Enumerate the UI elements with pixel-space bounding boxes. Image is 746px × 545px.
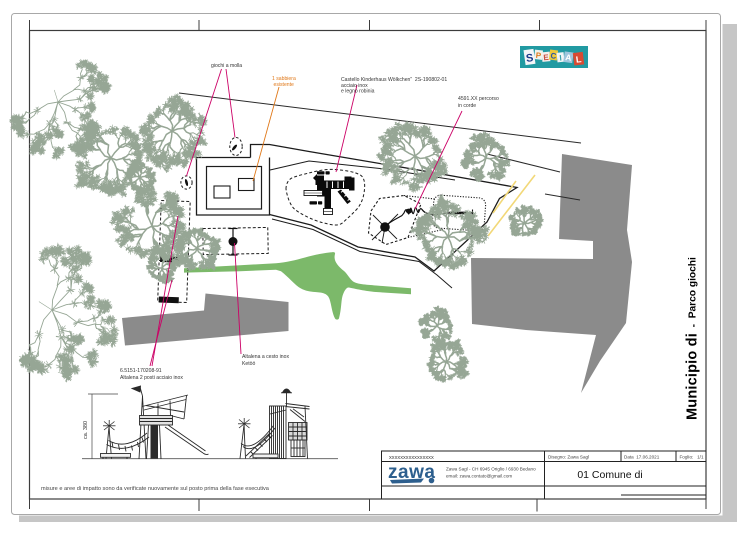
svg-text:giochi a molla: giochi a molla <box>211 63 242 69</box>
svg-text:ca. 380: ca. 380 <box>83 421 89 439</box>
svg-text:Zawa Sagl - CH 6945 Origlio /: Zawa Sagl - CH 6945 Origlio / 6930 Bedan… <box>446 467 536 472</box>
svg-text:Disegno: Zawa Sagl: Disegno: Zawa Sagl <box>548 455 589 460</box>
svg-text:in corde: in corde <box>458 103 476 109</box>
svg-text:email: zawa.contato@gmail.com: email: zawa.contato@gmail.com <box>446 474 512 479</box>
svg-text:Altalena 2 posti acciaio inox: Altalena 2 posti acciaio inox <box>120 375 183 381</box>
svg-text:Municipio di - Parco giochi: Municipio di - Parco giochi <box>685 257 701 420</box>
svg-text:e legno robinia: e legno robinia <box>341 88 375 94</box>
svg-text:Foglio: 1/1: Foglio: 1/1 <box>680 455 704 460</box>
svg-text:esistente: esistente <box>274 82 295 88</box>
svg-text:4591.XX percorso: 4591.XX percorso <box>458 96 499 102</box>
svg-text:Data 17.06.2021: Data 17.06.2021 <box>624 455 660 460</box>
svg-text:xxxxxxxxxxxxxxxx: xxxxxxxxxxxxxxxx <box>389 455 434 461</box>
svg-text:misure e aree di impatto sono: misure e aree di impatto sono da verific… <box>41 486 270 492</box>
svg-text:Ketöö: Ketöö <box>242 361 255 367</box>
svg-text:Altalena a cesto inox: Altalena a cesto inox <box>242 354 289 360</box>
svg-text:6.5151-170208-91: 6.5151-170208-91 <box>120 368 162 374</box>
svg-text:01 Comune di: 01 Comune di <box>577 469 642 481</box>
